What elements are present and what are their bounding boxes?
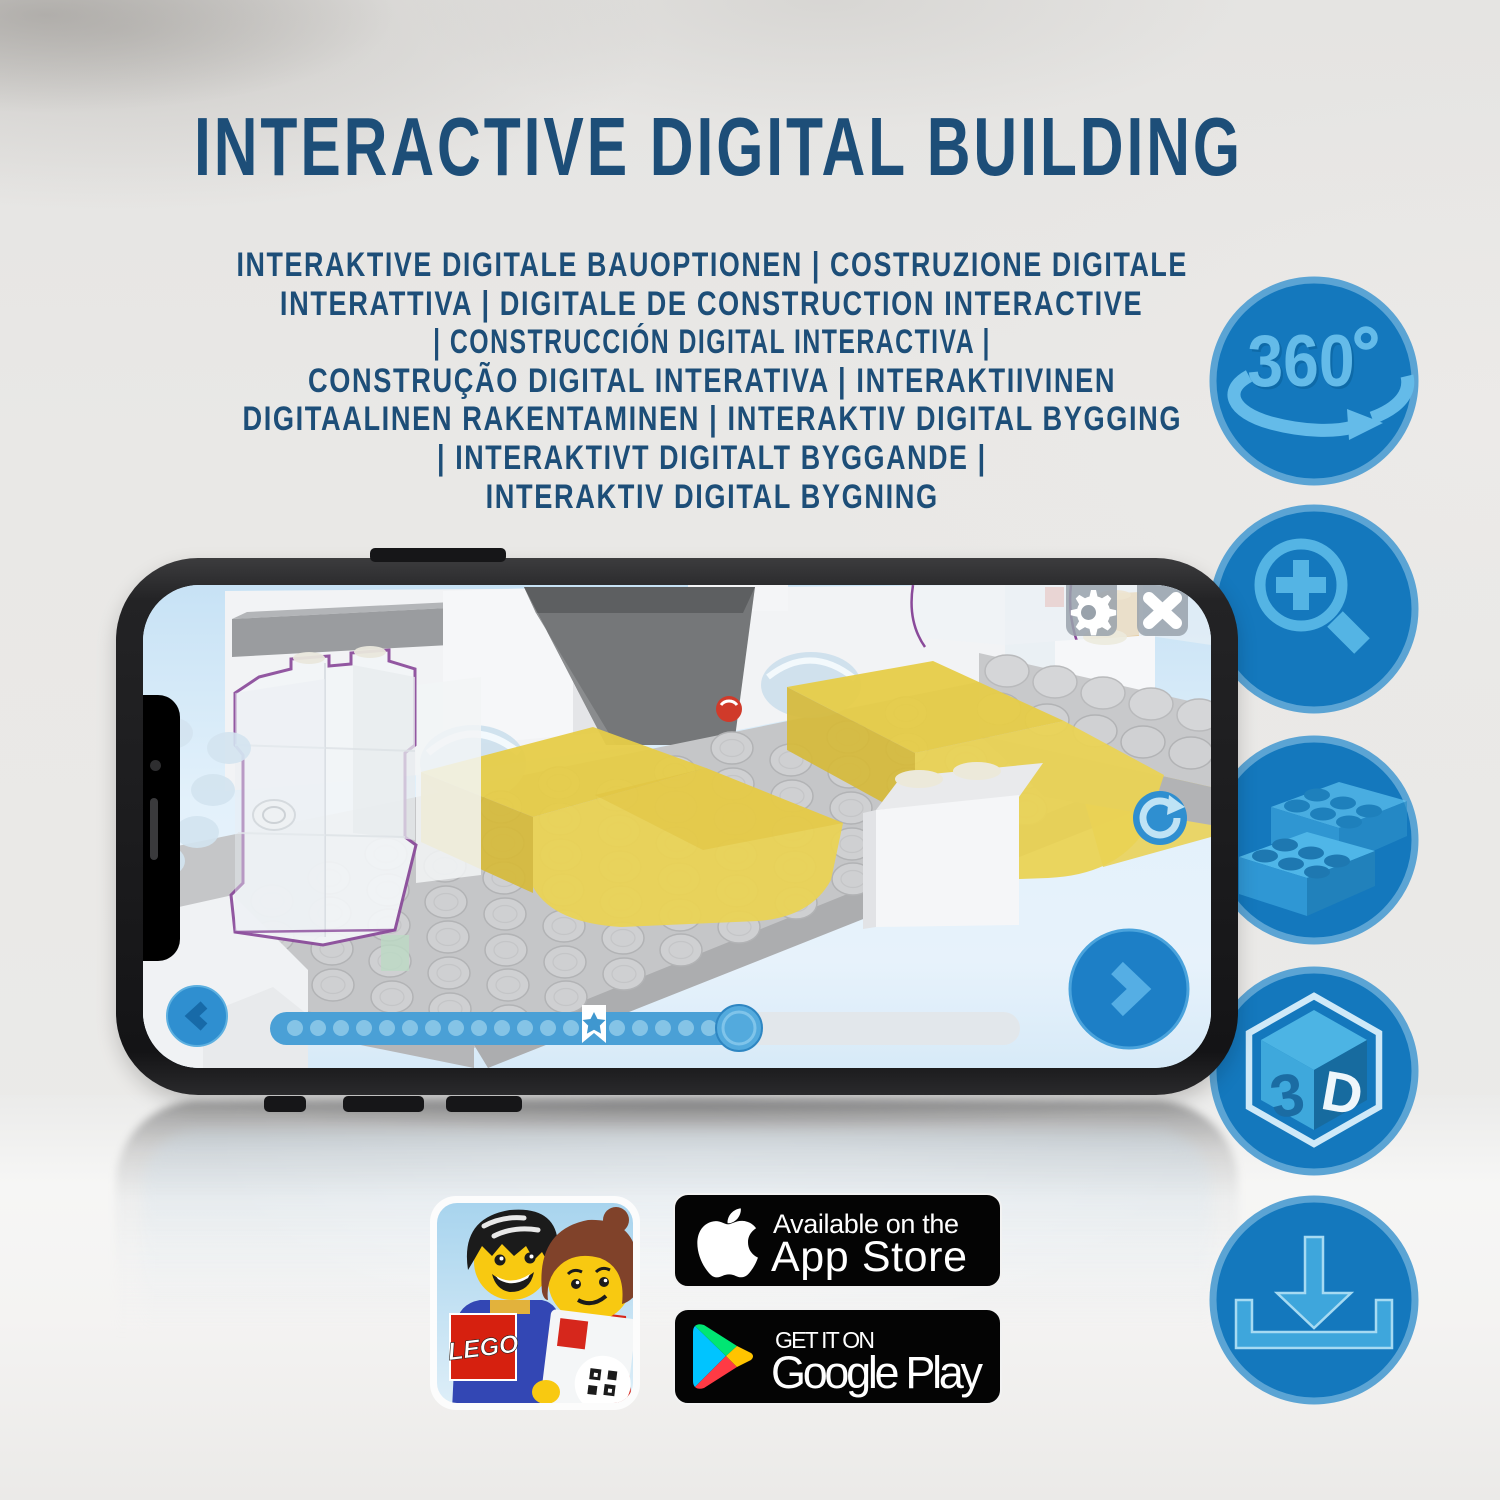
svg-text:App Store: App Store: [771, 1233, 967, 1281]
svg-text:Google Play: Google Play: [771, 1347, 984, 1398]
svg-text:360: 360: [1247, 320, 1354, 402]
